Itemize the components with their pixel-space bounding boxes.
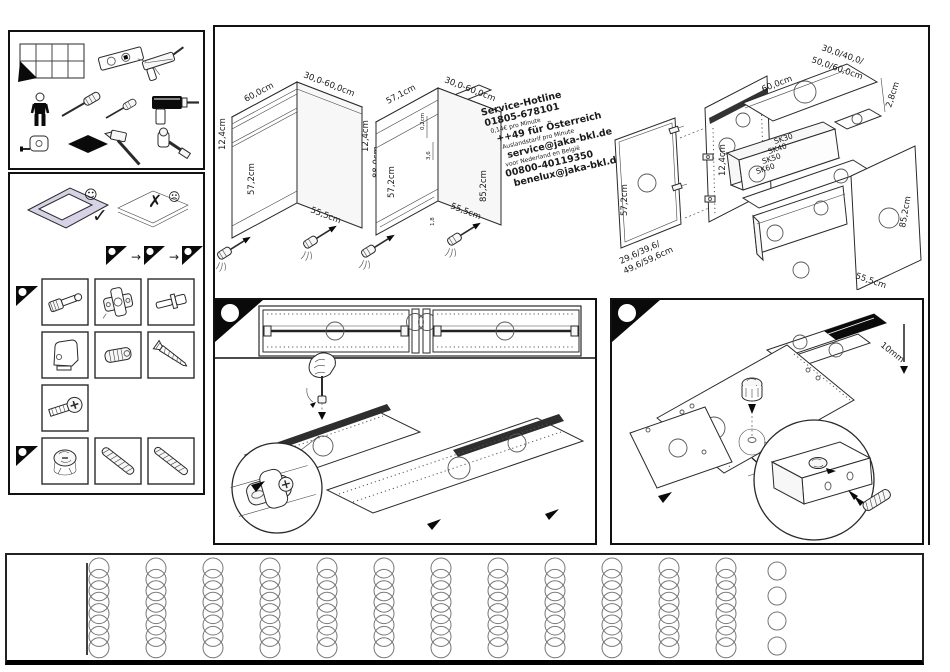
punch-hole: [374, 638, 394, 658]
punch-hole: [659, 626, 679, 646]
punch-hole: [317, 592, 337, 612]
punch-hole: [431, 569, 451, 589]
assembly-step-2-panel: 10mm: [610, 298, 924, 545]
preparation-illustration: ☺ ✓ ✗ ☹ → →: [10, 174, 203, 493]
punch-hole: [374, 569, 394, 589]
punch-hole: [716, 615, 736, 635]
dim-top-thickness: 2,8cm: [884, 81, 902, 109]
punch-hole: [488, 638, 508, 658]
hardware-cell-threaded-rod: [95, 438, 141, 484]
dim-height: 85,2cm: [479, 170, 489, 202]
punch-hole: [659, 592, 679, 612]
hardware-cell-cam-lock: [42, 438, 88, 484]
step-1-badge-icon: [215, 300, 263, 342]
protective-pad-icon: [68, 135, 108, 153]
punch-hole: [317, 604, 337, 624]
instruction-sheet: ☺ ✓ ✗ ☹ → →: [0, 0, 950, 672]
step-sequence: → →: [106, 246, 203, 265]
punch-hole: [488, 626, 508, 646]
punch-hole: [602, 615, 622, 635]
tools-illustration: [10, 32, 203, 168]
punch-hole: [659, 569, 679, 589]
check-mark-icon: ✓: [92, 205, 108, 227]
punch-hole: [260, 569, 280, 589]
punch-hole: [260, 626, 280, 646]
punch-hole: [768, 637, 786, 655]
punch-hole: [488, 581, 508, 601]
punch-hole: [488, 592, 508, 612]
cam-and-bolt-detail-magnifier: [754, 420, 892, 540]
corner-flag-icon: [182, 246, 203, 265]
cross-mark-icon: ✗: [148, 192, 162, 212]
punch-hole: [431, 638, 451, 658]
punch-hole: [374, 626, 394, 646]
punch-hole: [768, 587, 786, 605]
punch-hole: [260, 558, 280, 578]
hammer-icon: [100, 129, 145, 165]
punch-hole: [89, 569, 109, 589]
punch-hole: [716, 558, 736, 578]
exploded-view-drawing: 57,2cm 29,6/39,6/ 49,6/59,6cm 12,4cm 60,…: [605, 28, 927, 290]
hand-with-cam-bolt: [307, 353, 336, 420]
hardware-cell-hinge: [95, 279, 141, 325]
caulking-gun-icon: [138, 44, 190, 82]
punch-hole: [602, 558, 622, 578]
punch-hole: [89, 592, 109, 612]
punch-hole: [716, 638, 736, 658]
punch-hole: [545, 604, 565, 624]
screwdriver-adjust-icon: [438, 219, 489, 261]
hardware-cell-wood-screw: [148, 332, 194, 378]
punch-hole: [89, 638, 109, 658]
punch-hole: [374, 592, 394, 612]
hardware-cell-cam-bolt: [42, 279, 88, 325]
screwdriver-adjust-icon: [216, 233, 259, 275]
screwdriver-adjust-icon: [294, 222, 345, 264]
punch-hole: [260, 592, 280, 612]
punch-hole: [146, 581, 166, 601]
dim-plinth: 1,8: [430, 217, 436, 226]
screwdriver-small-icon: [104, 98, 137, 121]
punch-hole: [716, 581, 736, 601]
punch-hole: [545, 558, 565, 578]
exploded-back-rail: [835, 109, 881, 129]
punch-hole: [659, 604, 679, 624]
step-2-badge-icon: [612, 300, 660, 342]
punch-hole: [260, 638, 280, 658]
punch-hole: [317, 626, 337, 646]
punch-hole: [545, 626, 565, 646]
punch-hole: [431, 592, 451, 612]
assemble-on-carpet-good-icon: ☺ ✓: [28, 188, 108, 228]
punch-hole: [602, 604, 622, 624]
punch-hole: [203, 626, 223, 646]
cabinet-closed-drawing: 60,0cm 30,0-60,0cm 12,4cm 57,2cm 88,0cm …: [216, 70, 382, 274]
punch-hole: [146, 592, 166, 612]
dim-door: 57,2cm: [247, 163, 257, 195]
punch-hole: [602, 581, 622, 601]
dim-rail: 3,6: [426, 151, 432, 160]
punch-hole: [374, 604, 394, 624]
dim-drawer-front: 12,4cm: [361, 120, 371, 152]
punch-hole: [768, 612, 786, 630]
punch-hole: [89, 626, 109, 646]
punch-hole: [431, 615, 451, 635]
punch-hole: [602, 569, 622, 589]
hardware-cell-threaded-rod-2: [148, 438, 194, 484]
assembly-step-1-panel: [213, 298, 597, 545]
punch-hole: [374, 558, 394, 578]
cabinet-overview-drawings: 60,0cm 30,0-60,0cm 12,4cm 57,2cm 88,0cm …: [216, 30, 512, 288]
punch-hole: [374, 615, 394, 635]
punch-hole: [488, 604, 508, 624]
punch-hole: [488, 615, 508, 635]
corner-flag-icon: [144, 246, 165, 265]
punch-hole-strip: [5, 553, 924, 665]
punch-hole: [146, 558, 166, 578]
punch-hole: [146, 626, 166, 646]
direction-arrow: [427, 519, 441, 530]
punch-hole: [260, 581, 280, 601]
hardware-cell-shelf-pin: [148, 279, 194, 325]
punch-hole: [716, 626, 736, 646]
socket-wrench-icon: [158, 128, 190, 158]
dim-side-drawer: 12,4cm: [718, 144, 728, 176]
hardware-cell-barrel-nut: [95, 332, 141, 378]
hardware-row1-flag-icon: [16, 286, 38, 306]
punch-hole: [146, 615, 166, 635]
dim-10mm: 10mm: [878, 340, 906, 365]
spirit-level-icon: [98, 47, 144, 71]
sad-face-icon: ☹: [168, 190, 181, 204]
arrow-right: →: [131, 250, 141, 264]
punch-hole: [602, 626, 622, 646]
dim-top-gap: 0,2cm: [420, 113, 426, 130]
direction-arrow: [658, 492, 672, 503]
hardware-cell-connector-screw: [42, 385, 88, 431]
punch-hole: [146, 604, 166, 624]
punch-hole: [260, 604, 280, 624]
arrow-right: →: [169, 250, 179, 264]
dim-door: 57,2cm: [387, 166, 397, 198]
person-icon: [32, 93, 48, 126]
exploded-top-panel: 60,0cm 30,0/40,0/ 50,0/60,0cm 2,8cm: [743, 43, 902, 121]
punch-hole: [716, 569, 736, 589]
smiley-face-icon: ☺: [84, 188, 98, 203]
punch-hole: [317, 615, 337, 635]
punch-hole: [431, 558, 451, 578]
punch-hole: [488, 569, 508, 589]
punch-hole: [545, 581, 565, 601]
depth-label-group: 10mm: [878, 324, 908, 374]
punch-hole: [317, 569, 337, 589]
dim-door-height: 57,2cm: [620, 184, 630, 216]
punch-hole: [89, 558, 109, 578]
punch-hole: [768, 562, 786, 580]
exploded-door-panel: 57,2cm 29,6/39,6/ 49,6/59,6cm: [615, 118, 687, 277]
punch-hole: [203, 638, 223, 658]
corner-flag-icon: [106, 246, 127, 265]
punch-hole: [545, 592, 565, 612]
punch-hole: [260, 615, 280, 635]
punch-hole: [89, 604, 109, 624]
step-2-drawing: 10mm: [612, 300, 922, 543]
punch-hole: [602, 638, 622, 658]
screwdriver-adjust-icon: [352, 231, 403, 273]
punch-hole: [203, 569, 223, 589]
assemble-on-floor-bad-icon: ✗ ☹: [118, 190, 188, 227]
punch-hole: [203, 581, 223, 601]
punch-hole: [203, 615, 223, 635]
cordless-drill-icon: [152, 96, 199, 124]
punch-hole: [431, 626, 451, 646]
punch-hole: [203, 604, 223, 624]
punch-hole: [488, 558, 508, 578]
punch-hole: [203, 592, 223, 612]
punch-hole: [374, 581, 394, 601]
punch-hole: [659, 638, 679, 658]
side-panels-flat-strip: [259, 306, 581, 356]
punch-hole: [317, 581, 337, 601]
punch-hole: [545, 615, 565, 635]
punch-hole: [716, 592, 736, 612]
punch-hole: [146, 569, 166, 589]
punch-hole: [146, 638, 166, 658]
punch-hole: [659, 581, 679, 601]
dim-drawer-front: 12,4cm: [218, 118, 228, 150]
punch-hole: [203, 558, 223, 578]
punch-hole: [317, 558, 337, 578]
preparation-hardware-panel: ☺ ✓ ✗ ☹ → →: [8, 172, 205, 495]
punch-hole: [602, 592, 622, 612]
instruction-pages-grid-icon: [18, 44, 84, 82]
punch-hole: [431, 581, 451, 601]
hardware-row4-flag-icon: [16, 446, 38, 466]
punch-hole: [659, 615, 679, 635]
punch-hole: [431, 604, 451, 624]
tape-measure-icon: [20, 136, 48, 152]
screwdriver-icon: [60, 91, 101, 119]
punch-hole: [545, 638, 565, 658]
punch-hole: [89, 581, 109, 601]
tools-panel: [8, 30, 205, 170]
punch-hole: [317, 638, 337, 658]
punch-hole: [659, 558, 679, 578]
punch-hole: [716, 604, 736, 624]
punch-hole-columns: [7, 555, 922, 660]
punch-hole: [89, 615, 109, 635]
step-1-drawing: [215, 300, 595, 543]
hardware-cell-corner-connector: [42, 332, 88, 378]
punch-hole: [545, 569, 565, 589]
